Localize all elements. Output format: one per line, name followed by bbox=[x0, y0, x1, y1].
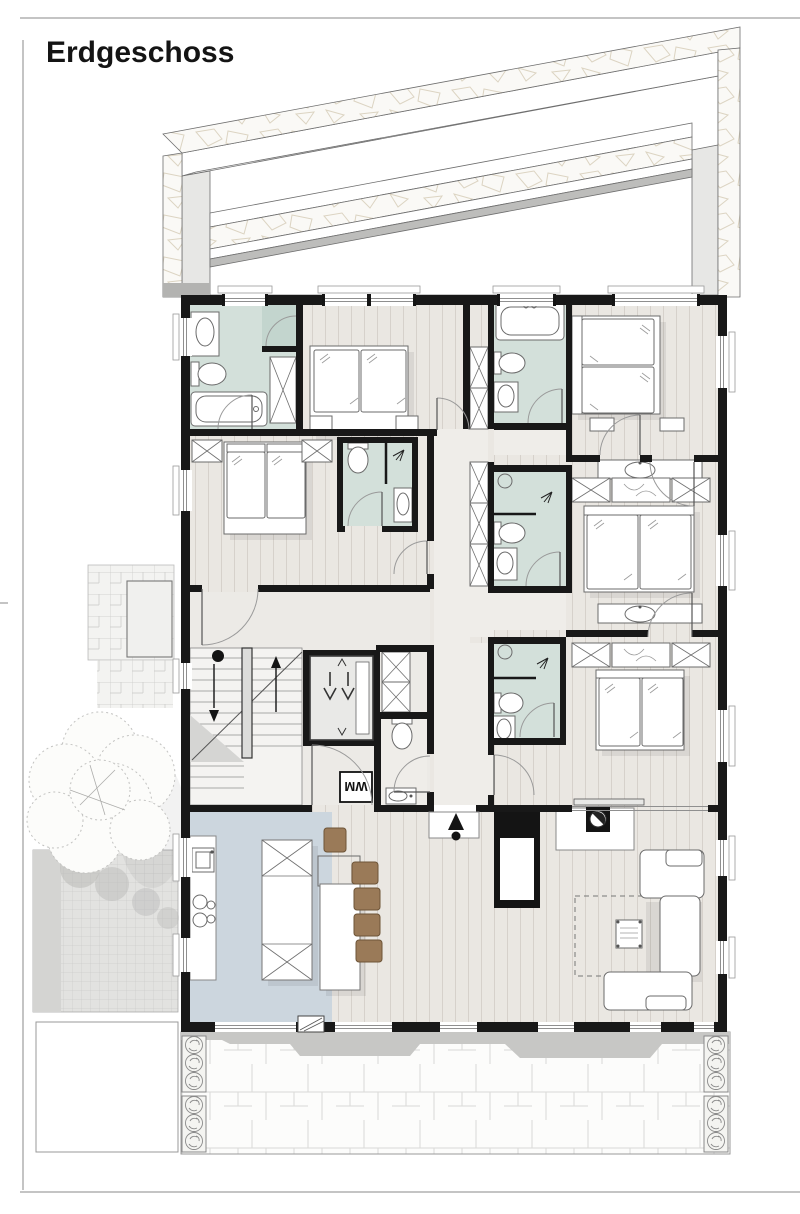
tree bbox=[27, 712, 175, 873]
bed-3-mattress-left bbox=[587, 515, 638, 589]
elevator-panel bbox=[356, 662, 369, 734]
dining-chair bbox=[354, 914, 380, 936]
bench-4 bbox=[612, 643, 670, 667]
washing-machine: WM bbox=[340, 772, 372, 802]
sink-1 bbox=[191, 312, 219, 356]
toilet-b bbox=[348, 447, 368, 473]
paved-slab bbox=[127, 581, 172, 657]
wardrobe-bath1 bbox=[270, 357, 296, 423]
window-top-4 bbox=[608, 286, 704, 306]
paved-court-edge bbox=[33, 850, 61, 1012]
stone-band-right bbox=[718, 48, 740, 297]
window-top-2 bbox=[318, 286, 420, 306]
floorplan-page: Erdgeschoss bbox=[0, 0, 800, 1214]
wardrobe-hall bbox=[382, 652, 410, 712]
site-left bbox=[27, 565, 186, 1152]
corridor-floor bbox=[434, 429, 470, 812]
toilet-4 bbox=[499, 693, 523, 713]
column-dot bbox=[212, 650, 224, 662]
stone-band-left bbox=[163, 153, 182, 297]
dining-chair bbox=[356, 940, 382, 962]
bed-3-mattress-right bbox=[640, 515, 691, 589]
bedroom-b bbox=[224, 442, 306, 534]
dining-chair bbox=[354, 888, 380, 910]
paved-path-2 bbox=[97, 660, 173, 708]
corridor-stub1 bbox=[470, 429, 488, 462]
toilet-wc bbox=[392, 723, 412, 749]
right-wall-face bbox=[692, 145, 718, 295]
corridor-closets bbox=[470, 347, 488, 586]
bedroom-3 bbox=[584, 506, 694, 592]
corridor-stub2 bbox=[470, 586, 494, 637]
entrance bbox=[429, 805, 479, 841]
shadow-corner bbox=[163, 283, 210, 297]
washing-machine-label: WM bbox=[344, 779, 367, 794]
window-top-3 bbox=[493, 286, 560, 306]
stair-spine bbox=[242, 648, 252, 758]
sofa-right bbox=[660, 896, 700, 976]
bench-3 bbox=[612, 478, 670, 502]
floorplan-drawing: Erdgeschoss bbox=[0, 0, 800, 1214]
window-top-1 bbox=[218, 286, 272, 306]
toilet-3 bbox=[499, 523, 525, 543]
fireplace-niche bbox=[500, 838, 534, 900]
page-title: Erdgeschoss bbox=[46, 36, 234, 69]
dining-chair bbox=[352, 862, 378, 884]
entrance-dot-icon bbox=[452, 832, 461, 841]
vanity-2 bbox=[598, 604, 702, 623]
closet-row-3 bbox=[572, 478, 710, 502]
bed-4-mattress-left bbox=[599, 678, 640, 746]
closet-row-4 bbox=[572, 643, 710, 667]
dining-chair bbox=[324, 828, 346, 852]
terrace bbox=[181, 1032, 730, 1154]
coffee-table bbox=[616, 920, 642, 948]
kitchen-island bbox=[262, 840, 312, 980]
bed-4-mattress-right bbox=[642, 678, 683, 746]
left-wall-face bbox=[182, 171, 210, 297]
toilet-1 bbox=[198, 363, 226, 385]
bedroom-4 bbox=[596, 670, 684, 750]
suite-hall-1 bbox=[494, 430, 566, 455]
lawn-plot bbox=[36, 1022, 178, 1152]
toilet-2 bbox=[499, 353, 525, 373]
retaining-structure bbox=[163, 27, 740, 297]
suite-hall-2 bbox=[494, 593, 566, 630]
bedroom-a bbox=[310, 346, 418, 434]
